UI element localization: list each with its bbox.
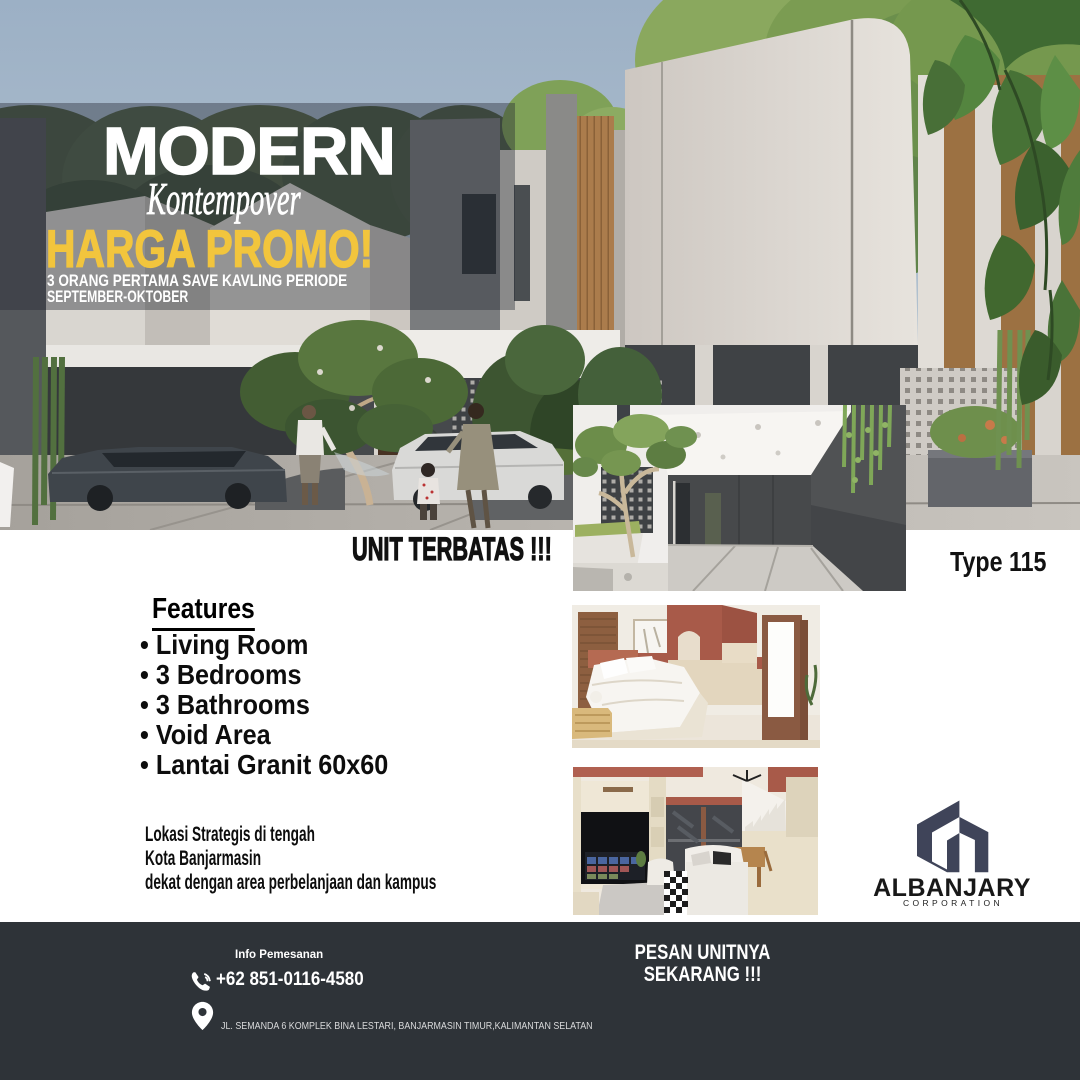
svg-text:CORPORATION: CORPORATION [903,898,1003,908]
